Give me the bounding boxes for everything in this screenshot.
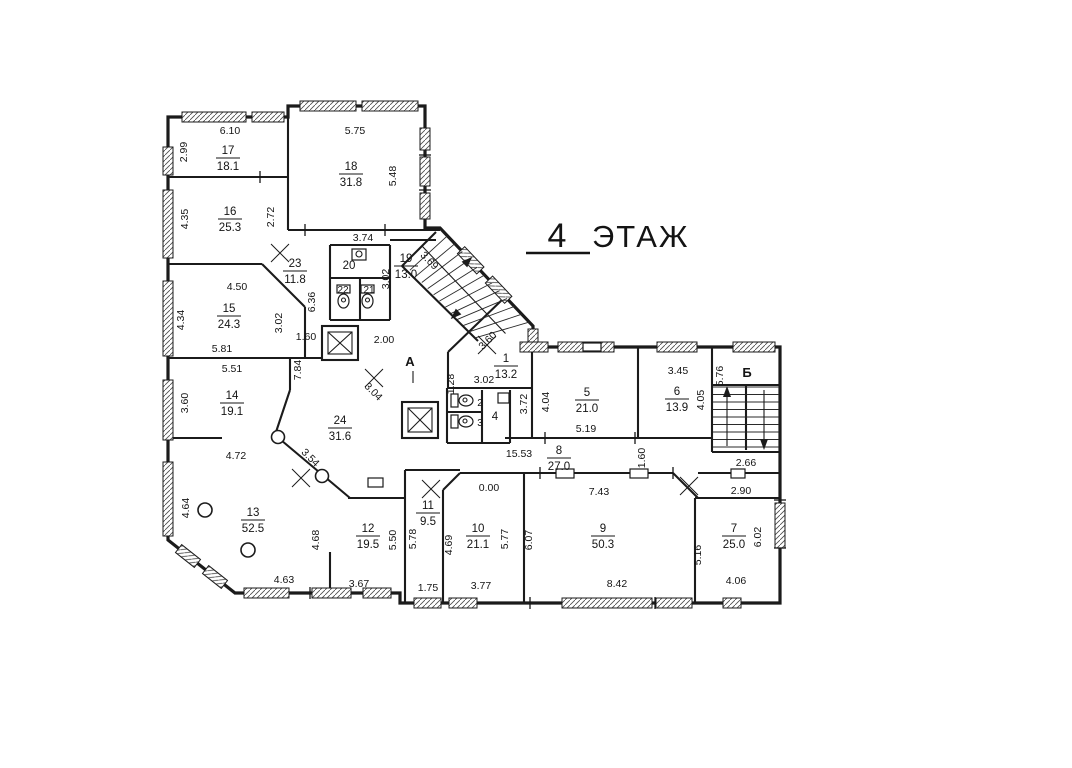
dim-4-72: 4.72: [226, 450, 247, 462]
dim-4-05: 4.05: [695, 390, 707, 411]
dim-3-02-c: 3.02: [474, 374, 495, 386]
room-2-number: 2: [477, 398, 483, 409]
room-4-number: 4: [492, 411, 499, 423]
room-18-label: 1831.8: [339, 161, 363, 189]
room-9-number: 9: [600, 523, 606, 535]
room-19-label: 1913.0: [394, 253, 418, 281]
dim-6-10: 6.10: [220, 125, 241, 137]
room-6-label: 613.9: [665, 386, 689, 414]
room-13-label: 1352.5: [241, 507, 265, 535]
dim-5-16: 5.16: [692, 545, 704, 566]
room-10-number: 10: [472, 523, 485, 535]
dim-5-48: 5.48: [387, 166, 399, 187]
dim-1-75: 1.75: [418, 582, 439, 594]
room-15-label: 1524.3: [217, 303, 241, 331]
room-19-area: 13.0: [395, 269, 417, 281]
dim-2-99: 2.99: [178, 142, 190, 163]
room-21-number: 21: [363, 285, 375, 296]
room-14-label: 1419.1: [220, 390, 244, 418]
room-19-number: 19: [400, 253, 413, 265]
room-7-area: 25.0: [723, 539, 745, 551]
room-12-label: 1219.5: [356, 523, 380, 551]
elevator-shaft-2: [402, 402, 438, 438]
dim-4-06: 4.06: [726, 575, 747, 587]
room-1-label: 113.2: [494, 353, 518, 381]
dim-5-51: 5.51: [222, 363, 243, 375]
dim-2-00: 2.00: [374, 334, 395, 346]
room-9-label: 950.3: [591, 523, 615, 551]
room-13-area: 52.5: [242, 523, 264, 535]
room-17-area: 18.1: [217, 161, 239, 173]
room-23-label: 2311.8: [283, 258, 307, 286]
dim-5-77: 5.77: [499, 529, 511, 550]
dim-5-75: 5.75: [345, 125, 366, 137]
dim-3-02-b: 3.02: [380, 269, 392, 290]
room-13-number: 13: [247, 507, 260, 519]
elevator-shaft-1: [322, 326, 358, 360]
room-11-area: 9.5: [420, 516, 436, 528]
dim-1-60-b: 1.60: [636, 448, 648, 469]
room-24-label: 2431.6: [328, 415, 352, 443]
dim-3-54: 3.54: [299, 446, 322, 469]
stairwell-b-letter: Б: [742, 365, 751, 380]
dim-3-45: 3.45: [668, 365, 689, 377]
dim-3-72: 3.72: [518, 394, 530, 415]
dim-4-64: 4.64: [180, 498, 192, 519]
dim-7-43: 7.43: [589, 486, 610, 498]
room-16-label: 1625.3: [218, 206, 242, 234]
dim-5-19: 5.19: [576, 423, 597, 435]
room-17-label: 1718.1: [216, 145, 240, 173]
room-1-area: 13.2: [495, 369, 517, 381]
room-7-number: 7: [731, 523, 737, 535]
room-8-label: 827.0: [547, 445, 571, 473]
dim-1-28: 1.28: [445, 374, 457, 395]
dim-3-60-a: 3.60: [179, 393, 191, 414]
room-5-area: 21.0: [576, 403, 598, 415]
dim-4-63: 4.63: [274, 574, 295, 586]
floor-word: ЭТАЖ: [592, 219, 690, 254]
room-5-number: 5: [584, 387, 590, 399]
room-14-area: 19.1: [221, 406, 243, 418]
room-15-number: 15: [223, 303, 236, 315]
room-24-number: 24: [334, 415, 347, 427]
dim-4-34: 4.34: [175, 310, 187, 331]
room-9-area: 50.3: [592, 539, 614, 551]
room-23-number: 23: [289, 258, 302, 270]
stairwell-a-letter: А: [405, 354, 415, 369]
stairwell-b-stairs: [713, 385, 779, 450]
dim-4-04: 4.04: [540, 392, 552, 413]
dim-3-04: 3.04: [362, 380, 385, 403]
room-7-label: 725.0: [722, 523, 746, 551]
room-14-number: 14: [226, 390, 239, 402]
dim-15-53: 15.53: [506, 448, 532, 460]
room-8-area: 27.0: [548, 461, 570, 473]
dim-3-60-b: 3.60: [476, 329, 499, 352]
dim-5-81: 5.81: [212, 343, 233, 355]
dim-3-77: 3.77: [471, 580, 492, 592]
dim-2-66: 2.66: [736, 457, 757, 469]
dim-7-84: 7.84: [292, 360, 304, 381]
floor-number: 4: [548, 217, 567, 255]
dim-4-35: 4.35: [179, 209, 191, 230]
room-18-number: 18: [345, 161, 358, 173]
room-10-area: 21.1: [467, 539, 489, 551]
room-11-number: 11: [422, 500, 434, 512]
room-11-label: 119.5: [416, 500, 440, 528]
room-23-area: 11.8: [284, 274, 306, 286]
floor-plan-drawing: 4 ЭТАЖ 1718.1 1625.3 1831.8 1524.3 2311.…: [0, 0, 1072, 768]
dim-3-02-a: 3.02: [273, 313, 285, 334]
dim-2-90: 2.90: [731, 485, 752, 497]
room-10-label: 1021.1: [466, 523, 490, 551]
dim-3-74: 3.74: [353, 232, 374, 244]
dim-8-42: 8.42: [607, 578, 628, 590]
dim-2-72: 2.72: [265, 207, 277, 228]
dim-4-50: 4.50: [227, 281, 248, 293]
room-6-area: 13.9: [666, 402, 688, 414]
room-16-number: 16: [224, 206, 237, 218]
dim-3-67: 3.67: [349, 578, 370, 590]
room-18-area: 31.8: [340, 177, 362, 189]
room-5-label: 521.0: [575, 387, 599, 415]
dim-5-50: 5.50: [387, 530, 399, 551]
room-16-area: 25.3: [219, 222, 241, 234]
room-20-number: 20: [343, 260, 356, 272]
room-22-number: 22: [337, 285, 349, 296]
dim-4-68: 4.68: [310, 530, 322, 551]
room-15-area: 24.3: [218, 319, 240, 331]
room-1-number: 1: [503, 353, 509, 365]
dim-3-69: 3.69: [418, 249, 441, 272]
dim-6-36: 6.36: [306, 292, 318, 313]
room-8-number: 8: [556, 445, 562, 457]
dim-6-07: 6.07: [523, 530, 535, 551]
dim-5-78: 5.78: [407, 529, 419, 550]
dim-6-02: 6.02: [752, 527, 764, 548]
room-3-number: 3: [477, 418, 483, 429]
dim-4-69: 4.69: [443, 535, 455, 556]
dim-5-76: 5.76: [714, 366, 726, 387]
floor-plan-page: 4 ЭТАЖ 1718.1 1625.3 1831.8 1524.3 2311.…: [0, 0, 1072, 768]
room-17-number: 17: [222, 145, 235, 157]
room-12-area: 19.5: [357, 539, 379, 551]
room-24-area: 31.6: [329, 431, 351, 443]
door-marks: [271, 244, 698, 498]
room-12-number: 12: [362, 523, 375, 535]
dim-1-60-a: 1.60: [296, 331, 317, 343]
room-6-number: 6: [674, 386, 680, 398]
dim-0-00: 0.00: [479, 482, 500, 494]
drawing-title: 4 ЭТАЖ: [526, 217, 690, 255]
